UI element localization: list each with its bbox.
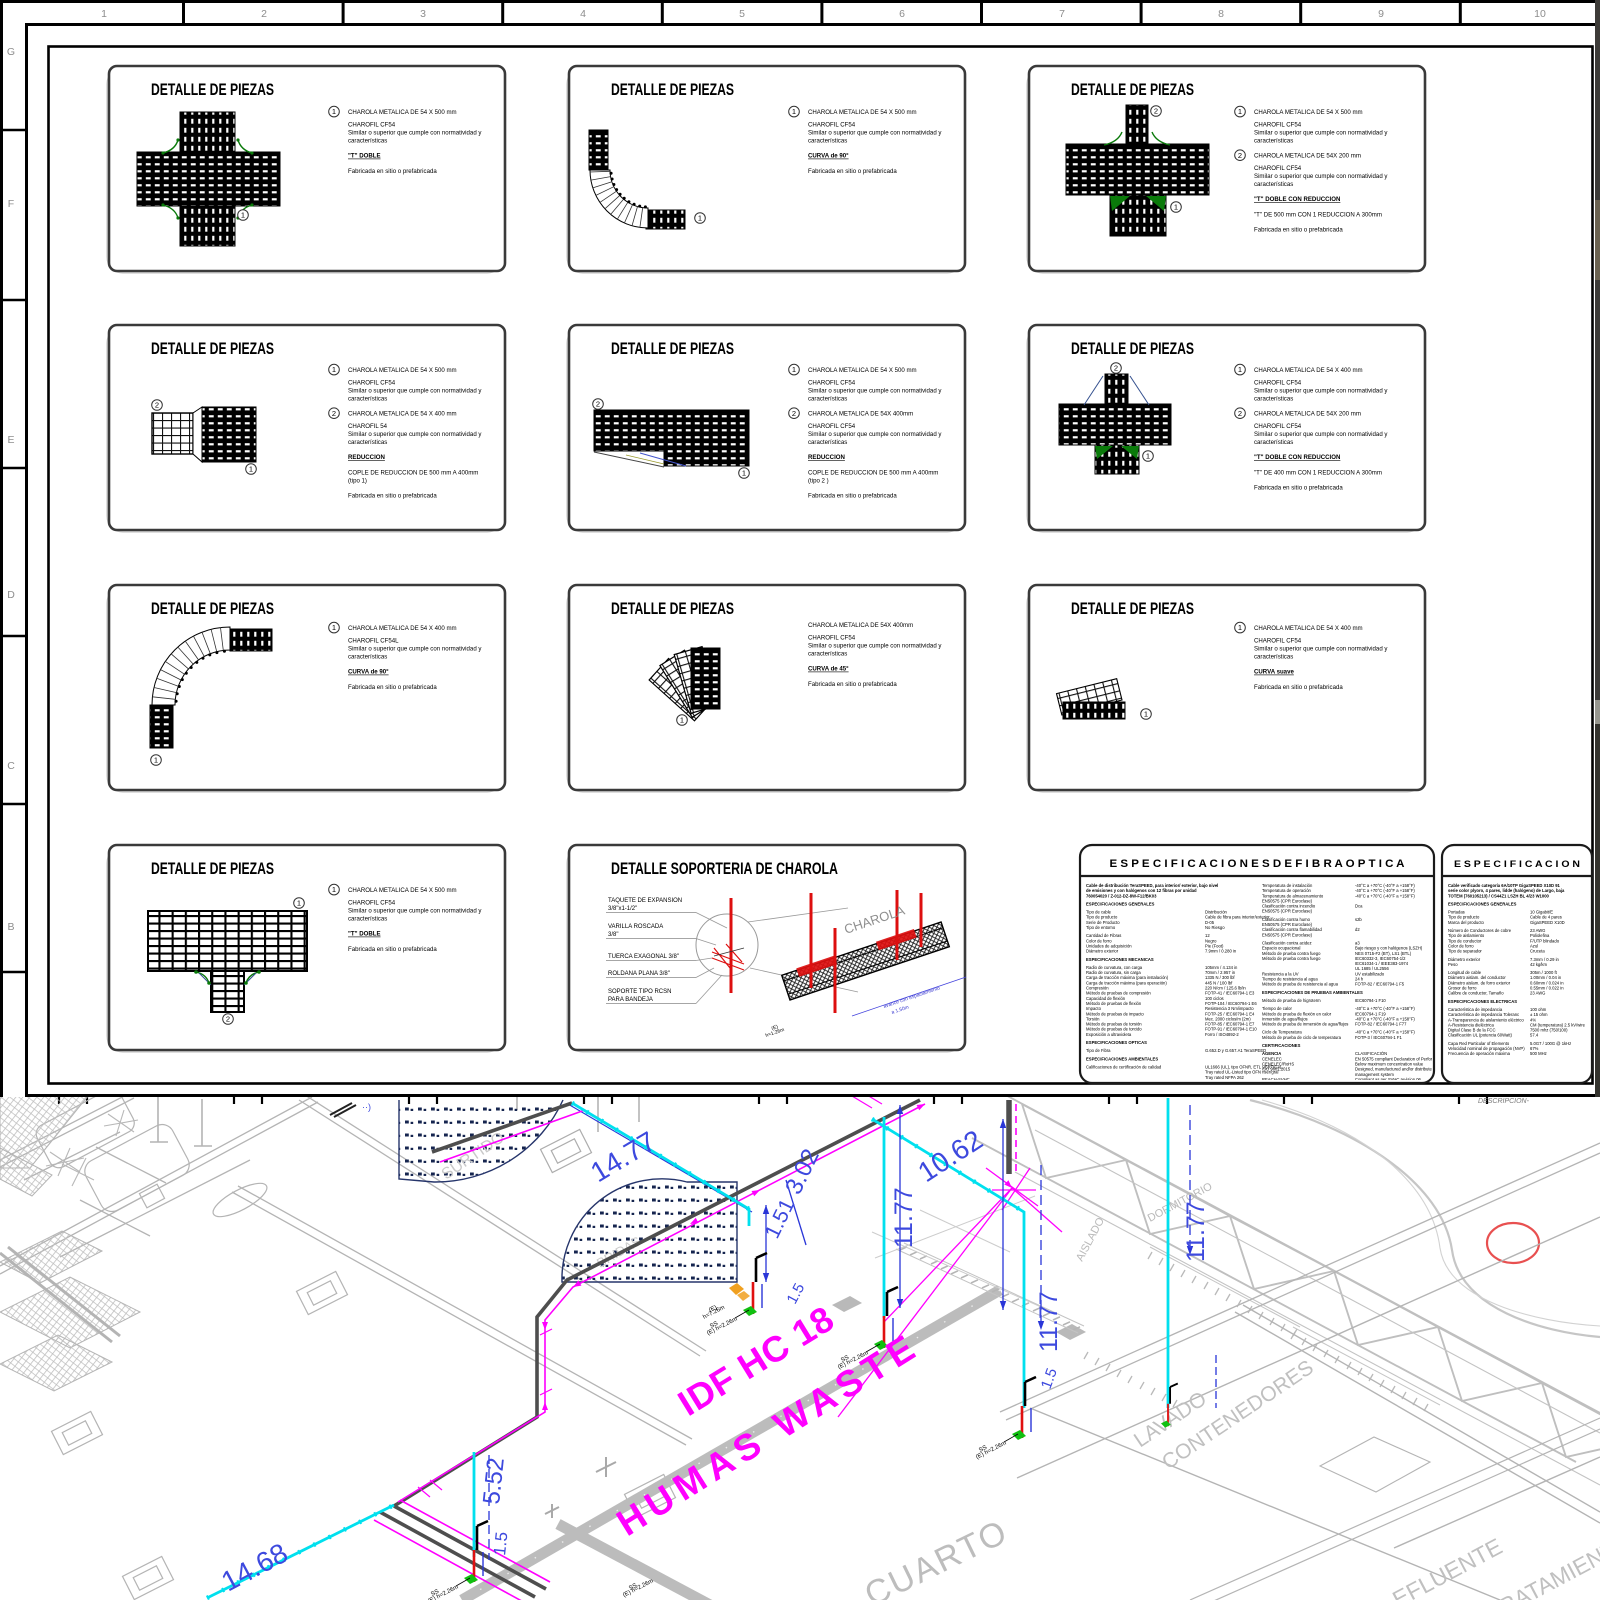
svg-text:características: características [348, 439, 387, 446]
svg-text:CHAROLA METALICA DE 54 X 500 m: CHAROLA METALICA DE 54 X 500 mm [348, 887, 457, 894]
svg-text:CURVA de 90°: CURVA de 90° [348, 669, 389, 676]
svg-text:Tipo de Fibra: Tipo de Fibra [1086, 1048, 1111, 1053]
svg-text:Similar o superior que cumple: Similar o superior que cumple con normat… [348, 645, 482, 652]
svg-text:ESPECIFICACIONES GENERALES: ESPECIFICACIONES GENERALES [1448, 901, 1517, 906]
svg-text:CHAROLA METALICA DE 54 X 500 m: CHAROLA METALICA DE 54 X 500 mm [1254, 109, 1363, 116]
svg-text:Método de prueba contra fuego: Método de prueba contra fuego [1262, 956, 1321, 961]
svg-text:características: características [348, 395, 387, 402]
svg-text:s2b: s2b [1355, 917, 1362, 922]
svg-text:Marca del producto: Marca del producto [1448, 920, 1485, 925]
svg-text:características: características [1254, 653, 1293, 660]
svg-text:Forro / ISO4892-2: Forro / ISO4892-2 [1205, 1032, 1239, 1037]
svg-text:Fabricada en sitio o prefabric: Fabricada en sitio o prefabricada [1254, 485, 1343, 492]
svg-text:Fabricada en sitio o prefabric: Fabricada en sitio o prefabricada [348, 946, 437, 953]
svg-text:DETALLE DE PIEZAS: DETALLE DE PIEZAS [611, 81, 734, 99]
svg-text:Peso: Peso [1448, 962, 1458, 967]
svg-text:CHAROLA METALICA DE 54 X 500 m: CHAROLA METALICA DE 54 X 500 mm [348, 367, 457, 374]
svg-text:CURVA de 90°: CURVA de 90° [808, 153, 849, 160]
svg-text:2: 2 [596, 400, 600, 409]
svg-text:Tray rated NFPA 262: Tray rated NFPA 262 [1205, 1075, 1245, 1080]
svg-text:DETALLE DE PIEZAS: DETALLE DE PIEZAS [611, 600, 734, 618]
svg-text:PARA BANDEJA: PARA BANDEJA [608, 997, 653, 1003]
svg-text:Cruceta: Cruceta [1530, 949, 1545, 954]
svg-text:CHAROLA METALICA DE 54 X 400 m: CHAROLA METALICA DE 54 X 400 mm [348, 411, 457, 418]
svg-text:CHAROLA METALICA DE 54 X 500 m: CHAROLA METALICA DE 54 X 500 mm [348, 109, 457, 116]
svg-text:9: 9 [1378, 8, 1384, 20]
svg-text:1: 1 [154, 756, 158, 765]
svg-text:características: características [808, 395, 847, 402]
svg-text:características: características [348, 653, 387, 660]
svg-text:IEC60794-1 F10: IEC60794-1 F10 [1355, 998, 1386, 1003]
svg-text:características: características [348, 915, 387, 922]
svg-text:Fabricada en sitio o prefabric: Fabricada en sitio o prefabricada [808, 168, 897, 175]
svg-text:6: 6 [899, 8, 905, 20]
svg-text:Dca: Dca [1355, 904, 1363, 909]
svg-text:5.52: 5.52 [478, 1456, 510, 1505]
svg-text:Fabricada en sitio o prefabric: Fabricada en sitio o prefabricada [808, 681, 897, 688]
svg-text:Similar o superior que cumple: Similar o superior que cumple con normat… [808, 387, 942, 394]
svg-text:-40°C a +70°C (-40°F a +158°F): -40°C a +70°C (-40°F a +158°F) [1355, 893, 1415, 898]
svg-text:CHAROLA METALICA DE 54 X 400 m: CHAROLA METALICA DE 54 X 400 mm [1254, 367, 1363, 374]
svg-text:1: 1 [1238, 623, 1242, 632]
svg-text:FOTP-3 / IEC60794-1 F1: FOTP-3 / IEC60794-1 F1 [1355, 1035, 1402, 1040]
svg-text:2: 2 [1154, 107, 1158, 116]
svg-text:··): ··) [362, 1102, 371, 1112]
svg-text:COPLE DE REDUCCION DE 500 mm A: COPLE DE REDUCCION DE 500 mm A 400mm [808, 469, 938, 476]
svg-text:CHAROLA METALICA DE 54 X 500 m: CHAROLA METALICA DE 54 X 500 mm [808, 109, 917, 116]
svg-text:Similar o superior que cumple: Similar o superior que cumple con normat… [808, 129, 942, 136]
svg-text:Similar o superior que cumple: Similar o superior que cumple con normat… [1254, 387, 1388, 394]
svg-text:CURVA de 45°: CURVA de 45° [808, 666, 849, 673]
svg-text:características: características [808, 439, 847, 446]
svg-text:1: 1 [249, 465, 253, 474]
svg-text:VARILLA ROSCADA: VARILLA ROSCADA [608, 924, 663, 930]
svg-text:características: características [1254, 439, 1293, 446]
svg-text:CHAROFIL CF54: CHAROFIL CF54 [808, 379, 856, 386]
svg-text:2: 2 [261, 8, 267, 20]
svg-text:CHAROFIL CF54: CHAROFIL CF54 [348, 121, 396, 128]
svg-text:1: 1 [1238, 365, 1242, 374]
svg-text:CHAROFIL CF54: CHAROFIL CF54 [808, 121, 856, 128]
svg-text:ESPECIFICACIONES DE PRUEBAS AM: ESPECIFICACIONES DE PRUEBAS AMBIENTALES [1262, 990, 1363, 995]
svg-text:23 AWG: 23 AWG [1530, 991, 1545, 996]
svg-text:CERTIFICACIONES: CERTIFICACIONES [1262, 1043, 1301, 1048]
svg-text:1: 1 [1174, 203, 1178, 212]
svg-text:1: 1 [698, 214, 702, 223]
svg-text:F: F [8, 198, 14, 210]
svg-text:TAQUETE DE EXPANSION: TAQUETE DE EXPANSION [608, 898, 682, 904]
svg-text:Clasificación UL (potencia 60W: Clasificación UL (potencia 60Watt) [1448, 1033, 1513, 1038]
svg-text:2: 2 [226, 1015, 230, 1024]
svg-text:Frecuencia de operación máxima: Frecuencia de operación máxima [1448, 1051, 1511, 1056]
svg-text:"T" DOBLE: "T" DOBLE [348, 931, 381, 938]
svg-text:CHAROFIL CF54: CHAROFIL CF54 [808, 634, 856, 641]
svg-text:"T" DE 400 mm CON 1 REDUCCION: "T" DE 400 mm CON 1 REDUCCION A 300mm [1254, 469, 1382, 476]
svg-text:ROLDANA PLANA 3/8": ROLDANA PLANA 3/8" [608, 971, 670, 977]
svg-text:"T" DE 500 mm CON 1 REDUCCION: "T" DE 500 mm CON 1 REDUCCION A 300mm [1254, 211, 1382, 218]
svg-text:"T" DOBLE CON REDUCCION: "T" DOBLE CON REDUCCION [1254, 454, 1340, 461]
svg-text:CHAROFIL CF54: CHAROFIL CF54 [1254, 423, 1302, 430]
svg-text:Fabricada en sitio o prefabric: Fabricada en sitio o prefabricada [348, 493, 437, 500]
svg-text:Similar o superior que cumple: Similar o superior que cumple con normat… [1254, 431, 1388, 438]
svg-text:Similar o superior que cumple: Similar o superior que cumple con normat… [1254, 173, 1388, 180]
svg-text:CHAROLA METALICA DE 54 X 500 m: CHAROLA METALICA DE 54 X 500 mm [808, 367, 917, 374]
svg-text:3: 3 [420, 8, 426, 20]
svg-text:CHAROLA METALICA DE 54X 400mm: CHAROLA METALICA DE 54X 400mm [808, 622, 913, 629]
svg-text:Tipo de entorno: Tipo de entorno [1086, 925, 1116, 930]
svg-text:CHAROLA METALICA DE 54X 400mm: CHAROLA METALICA DE 54X 400mm [808, 411, 913, 418]
svg-text:CHAROFIL CF54: CHAROFIL CF54 [348, 899, 396, 906]
svg-text:CHAROFIL CF54: CHAROFIL CF54 [1254, 121, 1302, 128]
svg-text:E S P E C I F I C A C I O N E: E S P E C I F I C A C I O N E S D E F I … [1110, 858, 1405, 870]
svg-text:11.77: 11.77 [1035, 1291, 1063, 1352]
svg-text:1: 1 [680, 716, 684, 725]
svg-text:1: 1 [297, 899, 301, 908]
svg-text:Similar o superior que cumple: Similar o superior que cumple con normat… [808, 431, 942, 438]
svg-text:CHAROFIL CF54: CHAROFIL CF54 [1254, 379, 1302, 386]
svg-text:Método de prueba de ciclo de t: Método de prueba de ciclo de temperatura [1262, 1035, 1342, 1040]
svg-text:CHAROFIL CF54: CHAROFIL CF54 [808, 423, 856, 430]
svg-text:EN50575 (CPR Euroclase): EN50575 (CPR Euroclase) [1262, 909, 1313, 914]
svg-text:2: 2 [792, 409, 796, 418]
svg-text:Similar o superior que cumple: Similar o superior que cumple con normat… [348, 387, 482, 394]
svg-text:3/8": 3/8" [608, 932, 618, 938]
svg-text:Método de prueba de inmersión: Método de prueba de inmersión de agua/fl… [1262, 1022, 1348, 1027]
svg-text:"T" DOBLE: "T" DOBLE [348, 153, 381, 160]
svg-text:ESPECIFICACIONES GENERALES: ESPECIFICACIONES GENERALES [1086, 901, 1155, 906]
svg-text:5: 5 [739, 8, 745, 20]
svg-text:2: 2 [1238, 409, 1242, 418]
svg-text:Similar o superior que cumple: Similar o superior que cumple con normat… [808, 642, 942, 649]
svg-text:1: 1 [332, 885, 336, 894]
svg-text:DETALLE DE PIEZAS: DETALLE DE PIEZAS [151, 600, 274, 618]
svg-text:CHAROFIL 54: CHAROFIL 54 [348, 423, 388, 430]
svg-text:G: G [7, 46, 15, 58]
svg-text:CHAROLA METALICA DE 54X 200 mm: CHAROLA METALICA DE 54X 200 mm [1254, 411, 1361, 418]
svg-text:ESPECIFICACIONES MECANICAS: ESPECIFICACIONES MECANICAS [1086, 957, 1154, 962]
svg-text:GigaSPEED X10D: GigaSPEED X10D [1530, 920, 1565, 925]
svg-text:FOTP-82 / IEC60794-1 F77: FOTP-82 / IEC60794-1 F77 [1355, 1022, 1407, 1027]
svg-text:características: características [348, 137, 387, 144]
svg-text:Exposición a ultravioleta: Exposición a ultravioleta [1086, 1032, 1132, 1037]
svg-text:1: 1 [1146, 452, 1150, 461]
svg-text:Fabricada en sitio o prefabric: Fabricada en sitio o prefabricada [808, 493, 897, 500]
svg-text:"T" DOBLE CON REDUCCION: "T" DOBLE CON REDUCCION [1254, 196, 1340, 203]
svg-text:CHAROFIL CF54L: CHAROFIL CF54L [348, 637, 399, 644]
svg-text:1: 1 [332, 365, 336, 374]
svg-text:DETALLE DE PIEZAS: DETALLE DE PIEZAS [151, 340, 274, 358]
svg-text:CHAROLA METALICA DE 54 X 400 m: CHAROLA METALICA DE 54 X 400 mm [348, 625, 457, 632]
svg-text:57.4: 57.4 [1530, 1033, 1539, 1038]
svg-text:Similar o superior que cumple: Similar o superior que cumple con normat… [348, 129, 482, 136]
svg-text:1: 1 [1144, 710, 1148, 719]
svg-text:SOPORTE TIPO RCSN: SOPORTE TIPO RCSN [608, 989, 671, 995]
svg-text:E: E [7, 434, 14, 446]
svg-text:REDUCCION: REDUCCION [348, 454, 385, 461]
svg-text:1: 1 [101, 8, 107, 20]
svg-text:EN50575 (CPR Euroclase): EN50575 (CPR Euroclase) [1262, 932, 1313, 937]
svg-text:2: 2 [155, 401, 159, 410]
svg-text:ESPECIFICACIONES AMBIENTALES: ESPECIFICACIONES AMBIENTALES [1086, 1056, 1158, 1061]
svg-text:COPLE DE REDUCCION DE 500 mm A: COPLE DE REDUCCION DE 500 mm A 400mm [348, 469, 478, 476]
svg-text:Similar o superior que cumple: Similar o superior que cumple con normat… [1254, 645, 1388, 652]
svg-text:Fabricada en sitio o prefabric: Fabricada en sitio o prefabricada [348, 168, 437, 175]
svg-text:CHAROLA METALICA DE 54X 200 mm: CHAROLA METALICA DE 54X 200 mm [1254, 153, 1361, 160]
svg-text:2: 2 [332, 409, 336, 418]
svg-text:2: 2 [1238, 151, 1242, 160]
svg-text:características: características [1254, 181, 1293, 188]
svg-text:TOTEM (760105213) / CS44Z1 LSZ: TOTEM (760105213) / CS44Z1 LSZH BL 4/23 … [1448, 893, 1550, 898]
svg-text:42 kg/km: 42 kg/km [1530, 962, 1548, 967]
svg-text:1: 1 [241, 211, 245, 220]
svg-text:1: 1 [332, 107, 336, 116]
svg-text:3/8"x1-1/2": 3/8"x1-1/2" [608, 906, 637, 912]
svg-text:Fabricada en sitio o prefabric: Fabricada en sitio o prefabricada [348, 684, 437, 691]
svg-text:7: 7 [1059, 8, 1065, 20]
svg-text:DETALLE DE PIEZAS: DETALLE DE PIEZAS [1071, 81, 1194, 99]
svg-text:Método de prueba de resistenci: Método de prueba de resistencia al agua [1262, 982, 1339, 987]
svg-text:4: 4 [580, 8, 586, 20]
svg-text:Fabricada en sitio o prefabric: Fabricada en sitio o prefabricada [1254, 227, 1343, 234]
svg-text:2: 2 [1114, 364, 1118, 373]
svg-text:DETALLE DE PIEZAS: DETALLE DE PIEZAS [1071, 340, 1194, 358]
svg-text:Diámetro exterior: Diámetro exterior [1086, 949, 1119, 954]
svg-text:características: características [1254, 137, 1293, 144]
svg-text:7.9mm / 0.280 in: 7.9mm / 0.280 in [1205, 949, 1237, 954]
svg-text:DETALLE DE PIEZAS: DETALLE DE PIEZAS [1071, 600, 1194, 618]
svg-text:1: 1 [742, 469, 746, 478]
svg-text:DESCRIPCION-: DESCRIPCION- [1478, 1098, 1530, 1105]
svg-text:Fabricada en sitio o prefabric: Fabricada en sitio o prefabricada [1254, 684, 1343, 691]
svg-text:10: 10 [1534, 8, 1546, 20]
svg-text:CHAROFIL CF54: CHAROFIL CF54 [348, 379, 396, 386]
svg-text:características: características [808, 650, 847, 657]
svg-text:Similar o superior que cumple: Similar o superior que cumple con normat… [1254, 129, 1388, 136]
svg-text:ISO 9001:2015: ISO 9001:2015 [1262, 1067, 1291, 1072]
svg-text:ESPECIFICACIONES ELECTRICAS: ESPECIFICACIONES ELECTRICAS [1448, 999, 1517, 1004]
svg-text:(tipo 2 ): (tipo 2 ) [808, 477, 829, 484]
svg-text:C: C [7, 760, 15, 772]
svg-text:ESPECIFICACIONES OPTICAS: ESPECIFICACIONES OPTICAS [1086, 1040, 1147, 1045]
svg-text:Tipo de separador: Tipo de separador [1448, 949, 1482, 954]
svg-text:d2: d2 [1355, 927, 1360, 932]
svg-text:No Riesgo: No Riesgo [1205, 925, 1225, 930]
svg-text:DETALLE DE PIEZAS: DETALLE DE PIEZAS [151, 81, 274, 99]
svg-text:760054020 / Z-012-DZ-8W-F12/BK: 760054020 / Z-012-DZ-8W-F12/BK03 [1086, 893, 1157, 898]
svg-text:DETALLE DE PIEZAS: DETALLE DE PIEZAS [611, 340, 734, 358]
svg-text:G.652.D y G.657.A1 TeraSPEED: G.652.D y G.657.A1 TeraSPEED [1205, 1048, 1266, 1053]
svg-text:Similar o superior que cumple: Similar o superior que cumple con normat… [348, 431, 482, 438]
svg-text:DETALLE SOPORTERIA DE CHAROLA: DETALLE SOPORTERIA DE CHAROLA [611, 860, 838, 878]
svg-text:REDUCCION: REDUCCION [808, 454, 845, 461]
svg-text:Calificaciones de certificació: Calificaciones de certificación de calid… [1086, 1065, 1162, 1070]
svg-text:11.77: 11.77 [890, 1187, 918, 1248]
svg-text:500 MHz: 500 MHz [1530, 1051, 1547, 1056]
svg-text:1: 1 [792, 107, 796, 116]
svg-text:DETALLE DE PIEZAS: DETALLE DE PIEZAS [151, 860, 274, 878]
svg-text:E S P E C I F I C A C I O N: E S P E C I F I C A C I O N [1454, 859, 1580, 870]
svg-text:características: características [1254, 395, 1293, 402]
svg-text:1.5: 1.5 [490, 1531, 511, 1556]
svg-text:8: 8 [1218, 8, 1224, 20]
svg-text:B: B [7, 921, 14, 933]
svg-text:Similar o superior que cumple: Similar o superior que cumple con normat… [348, 907, 482, 914]
svg-text:CHAROFIL CF54: CHAROFIL CF54 [1254, 165, 1302, 172]
svg-text:1: 1 [332, 623, 336, 632]
svg-text:Método de prueba de higroterm: Método de prueba de higroterm [1262, 998, 1321, 1003]
svg-text:1: 1 [792, 365, 796, 374]
svg-text:CHAROLA METALICA DE 54 X 400 m: CHAROLA METALICA DE 54 X 400 mm [1254, 625, 1363, 632]
svg-text:Cable de fibra para interior/e: Cable de fibra para interior/exterior [1205, 915, 1270, 920]
svg-text:características: características [808, 137, 847, 144]
svg-text:TUERCA EXAGONAL 3/8": TUERCA EXAGONAL 3/8" [608, 954, 679, 960]
svg-text:D: D [7, 589, 15, 601]
svg-text:CHAROFIL CF54: CHAROFIL CF54 [1254, 637, 1302, 644]
svg-text:Calibre de conductor, Tamaño: Calibre de conductor, Tamaño [1448, 991, 1504, 996]
svg-text:FOTP-82 / IEC60794-1 F5: FOTP-82 / IEC60794-1 F5 [1355, 982, 1405, 987]
svg-text:11.77: 11.77 [1182, 1201, 1210, 1262]
svg-text:CURVA suave: CURVA suave [1254, 669, 1294, 676]
svg-text:1: 1 [1238, 107, 1242, 116]
svg-text:(tipo 1): (tipo 1) [348, 477, 367, 484]
